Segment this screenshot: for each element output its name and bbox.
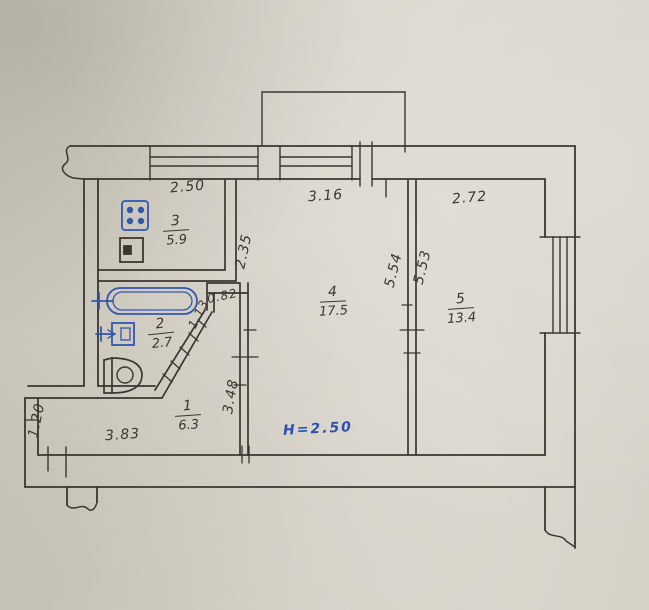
room1-area: 6.3 (178, 417, 200, 433)
floorplan-canvas: 2.50 3.16 2.72 2.35 0.82 1.13 5.54 5.53 … (0, 0, 649, 610)
room5-number: 5 (446, 291, 474, 310)
room5-area: 13.4 (447, 310, 477, 327)
toilet-icon (104, 358, 142, 393)
room1-number: 1 (173, 398, 201, 417)
room2-number: 2 (146, 316, 175, 335)
room4-window (280, 146, 352, 180)
room-label-bedroom: 5 13.4 (437, 288, 485, 327)
wall-break-bottom-left (67, 502, 97, 510)
wall-break-top-left (62, 146, 84, 179)
wall-break-bottom-right (545, 530, 575, 547)
room-label-hall: 1 6.3 (164, 395, 212, 434)
room4-number: 4 (319, 284, 347, 302)
entrance-door (48, 447, 66, 477)
outer-walls (25, 146, 575, 548)
balcony-outline (262, 92, 405, 152)
dim-kitchen-width: 2.50 (169, 177, 205, 196)
balcony-door (360, 142, 386, 197)
room5-window (540, 237, 580, 333)
kitchen-window (150, 146, 258, 180)
stove-icon (122, 201, 148, 230)
room3-area: 5.9 (166, 232, 188, 248)
dim-hall-width: 3.83 (104, 426, 140, 444)
room-label-kitchen: 3 5.9 (152, 210, 200, 249)
dim-room5-width: 2.72 (451, 188, 487, 207)
room3-number: 3 (161, 213, 189, 232)
kitchen-sink-icon (120, 238, 143, 262)
washbasin-icon (96, 323, 134, 345)
room4-area: 17.5 (319, 303, 349, 319)
room-label-living: 4 17.5 (309, 282, 357, 320)
bathtub-icon (92, 288, 197, 314)
dim-room4-width: 3.16 (307, 187, 343, 205)
room2-area: 2.7 (151, 335, 173, 352)
room-label-bathroom: 2 2.7 (136, 313, 185, 353)
